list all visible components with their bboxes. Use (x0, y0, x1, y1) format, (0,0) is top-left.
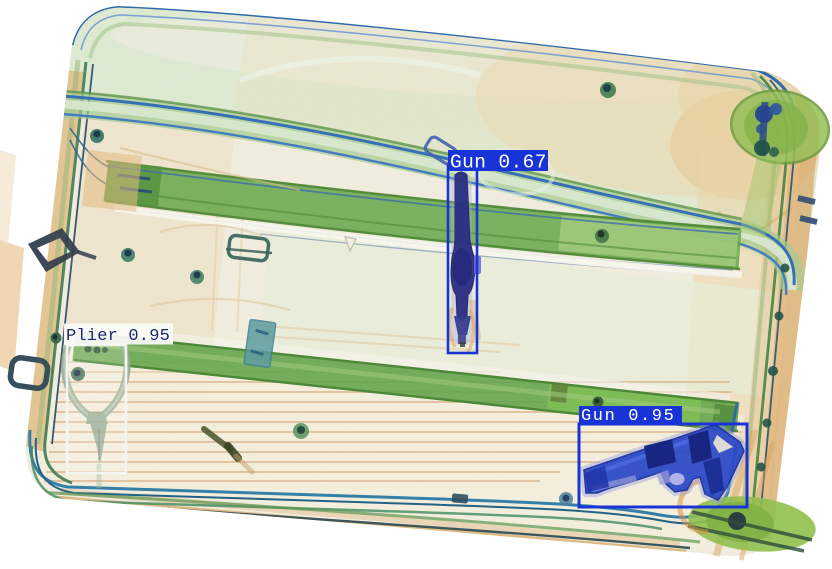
svg-text:Gun 0.67: Gun 0.67 (450, 152, 547, 174)
svg-text:Gun 0.95: Gun 0.95 (581, 407, 675, 426)
svg-text:Plier 0.95: Plier 0.95 (66, 327, 170, 346)
